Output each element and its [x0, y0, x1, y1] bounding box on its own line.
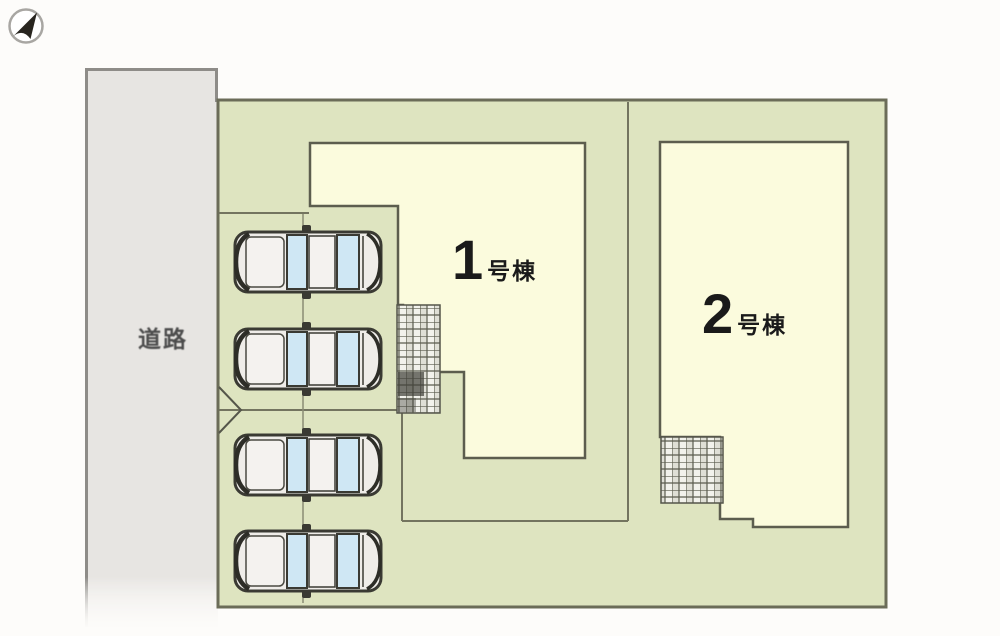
site-plan-drawing: [0, 0, 1000, 636]
road-area: [85, 68, 218, 627]
site-plan: 1 号棟 2 号棟 道路: [0, 0, 1000, 636]
car-icon: [235, 322, 381, 396]
car-icon: [235, 524, 381, 598]
car-icon: [235, 225, 381, 299]
porch-tiles-1: [397, 305, 440, 413]
north-arrow-icon: [0, 0, 52, 52]
car-icon: [235, 428, 381, 502]
porch-tiles-2: [661, 437, 723, 503]
